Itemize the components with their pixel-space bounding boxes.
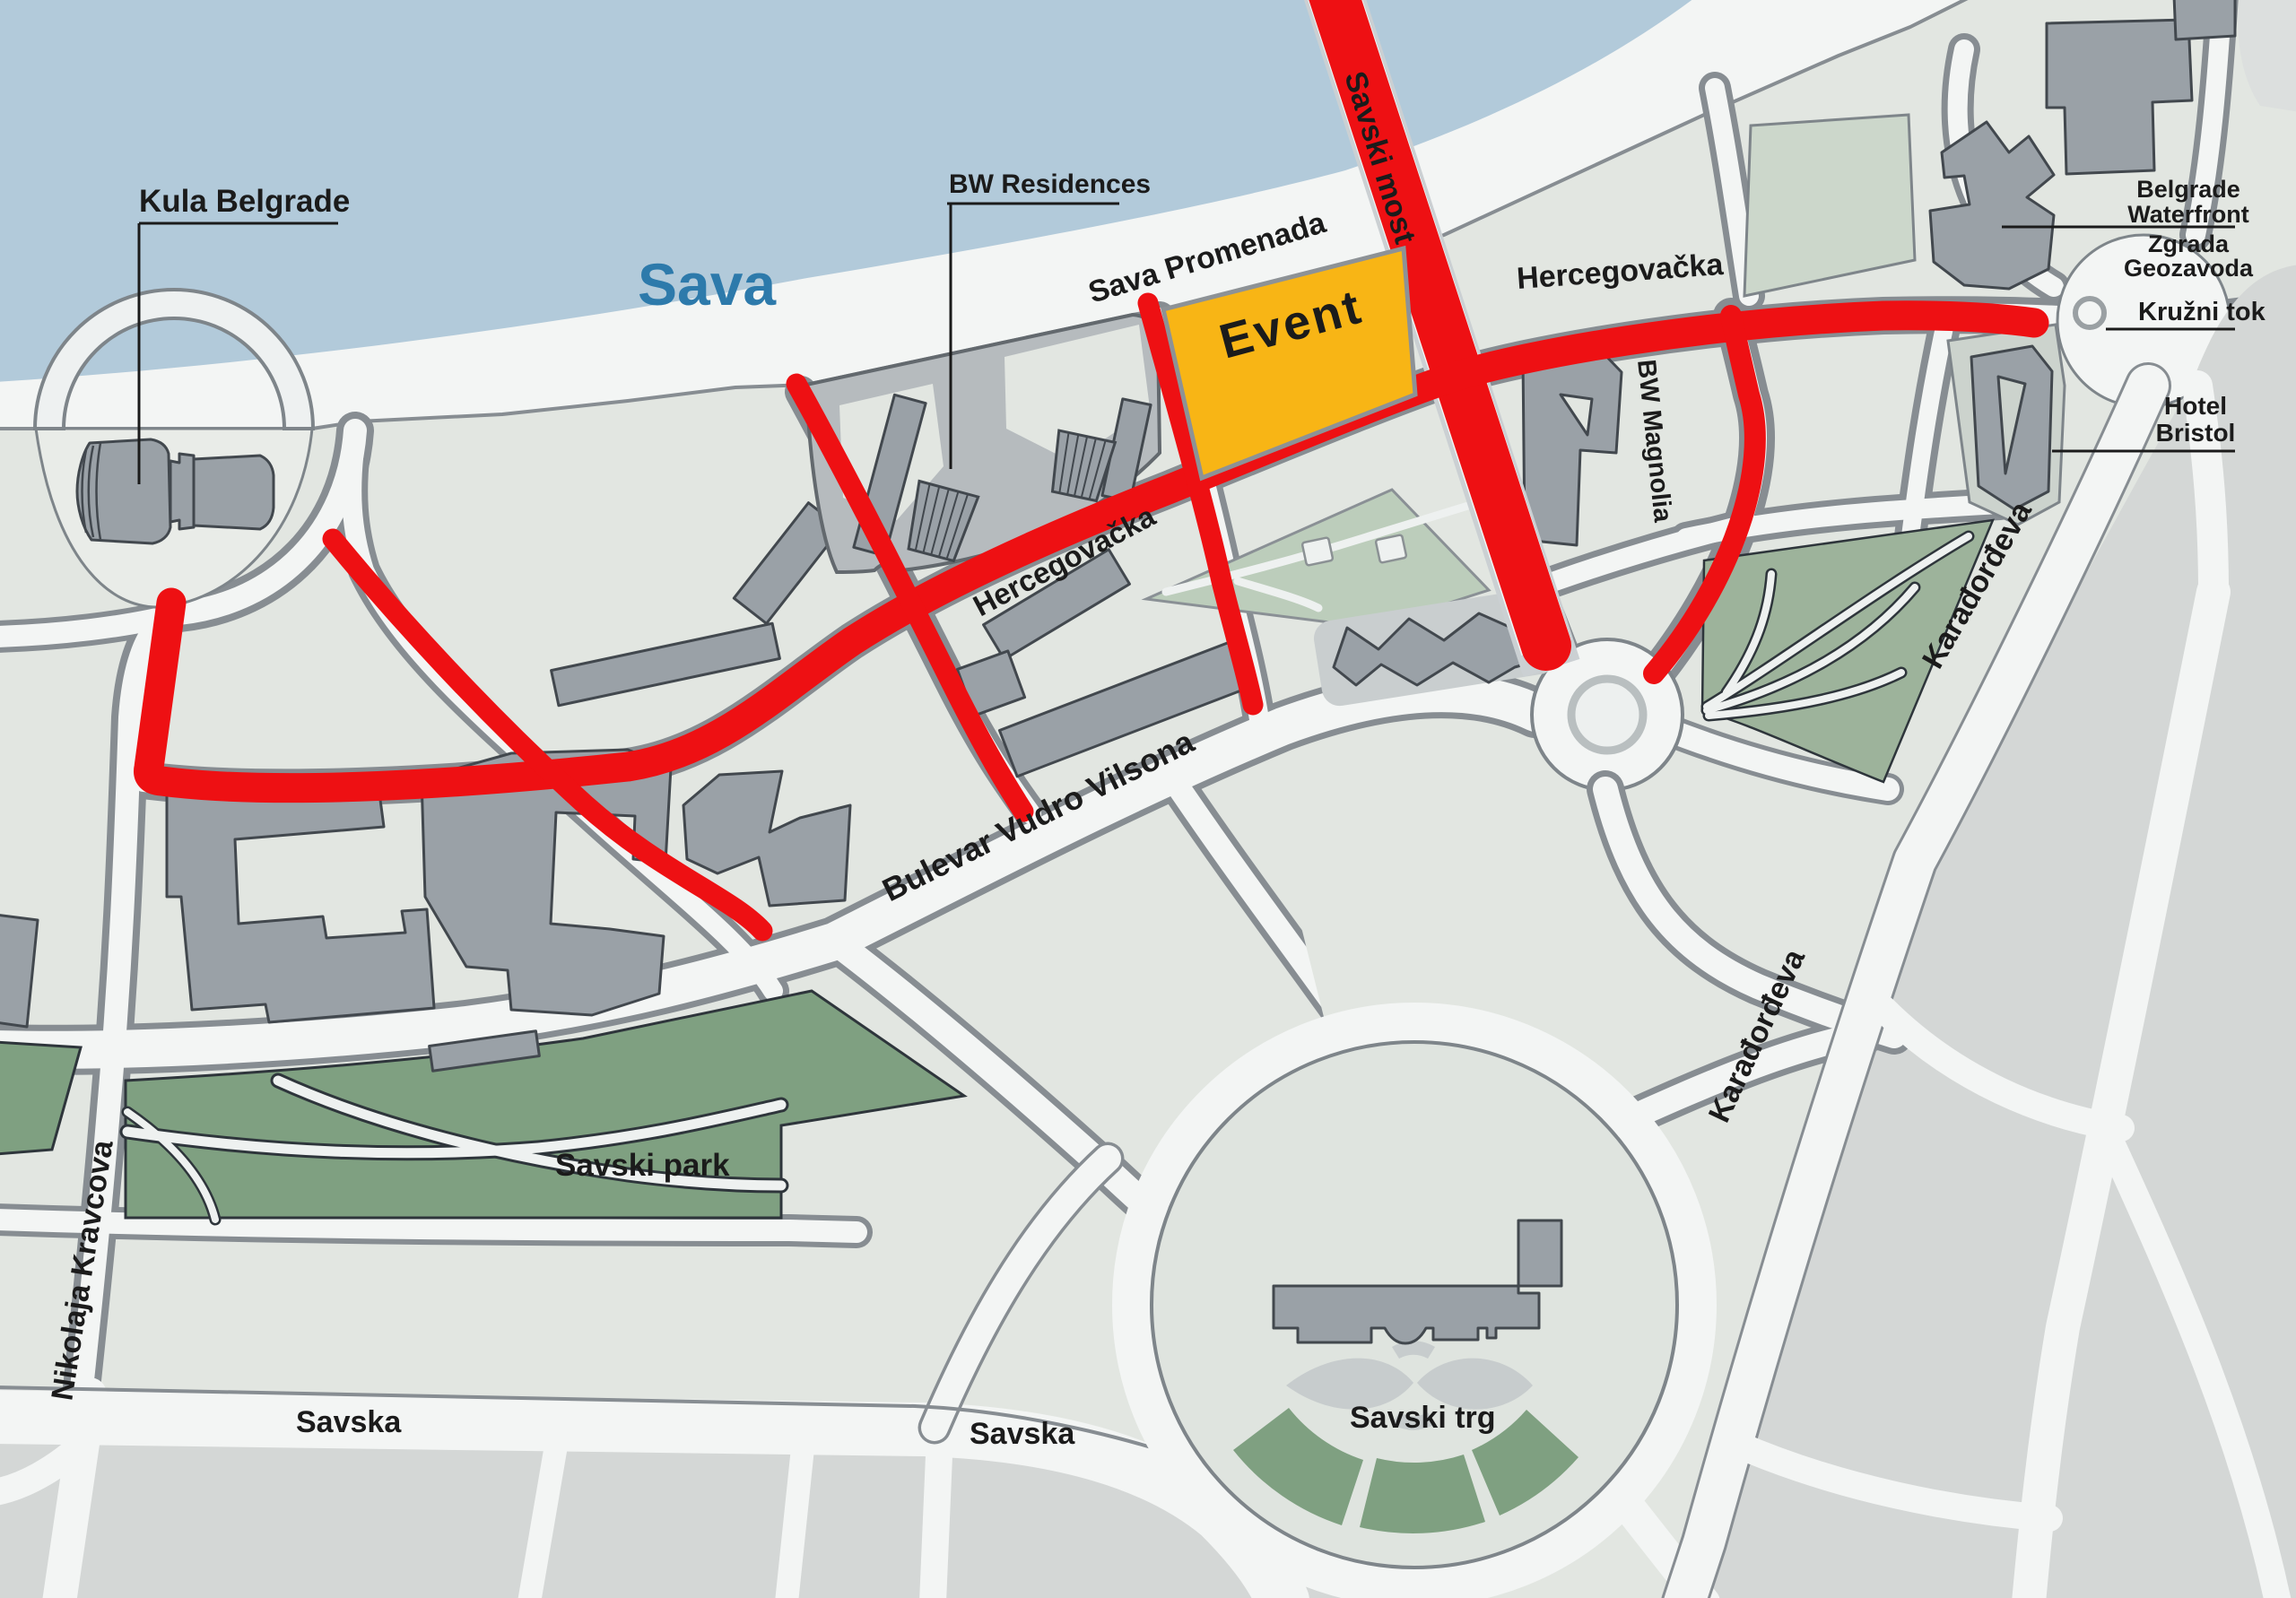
svg-text:Geozavoda: Geozavoda (2124, 255, 2254, 282)
svg-text:Kula Belgrade: Kula Belgrade (139, 184, 350, 219)
svg-text:Savska: Savska (296, 1405, 402, 1439)
svg-text:Waterfront: Waterfront (2127, 201, 2249, 228)
svg-text:Hotel: Hotel (2164, 392, 2227, 420)
svg-text:BW Residences: BW Residences (949, 169, 1151, 199)
svg-text:Savski trg: Savski trg (1350, 1401, 1496, 1435)
svg-text:Savska: Savska (970, 1417, 1075, 1451)
svg-text:Zgrada: Zgrada (2148, 230, 2230, 257)
svg-text:Bristol: Bristol (2156, 419, 2236, 447)
svg-text:Kružni tok: Kružni tok (2138, 298, 2266, 326)
svg-text:Savski park: Savski park (555, 1148, 730, 1183)
svg-text:Belgrade: Belgrade (2136, 176, 2240, 203)
svg-text:Sava: Sava (638, 251, 777, 317)
